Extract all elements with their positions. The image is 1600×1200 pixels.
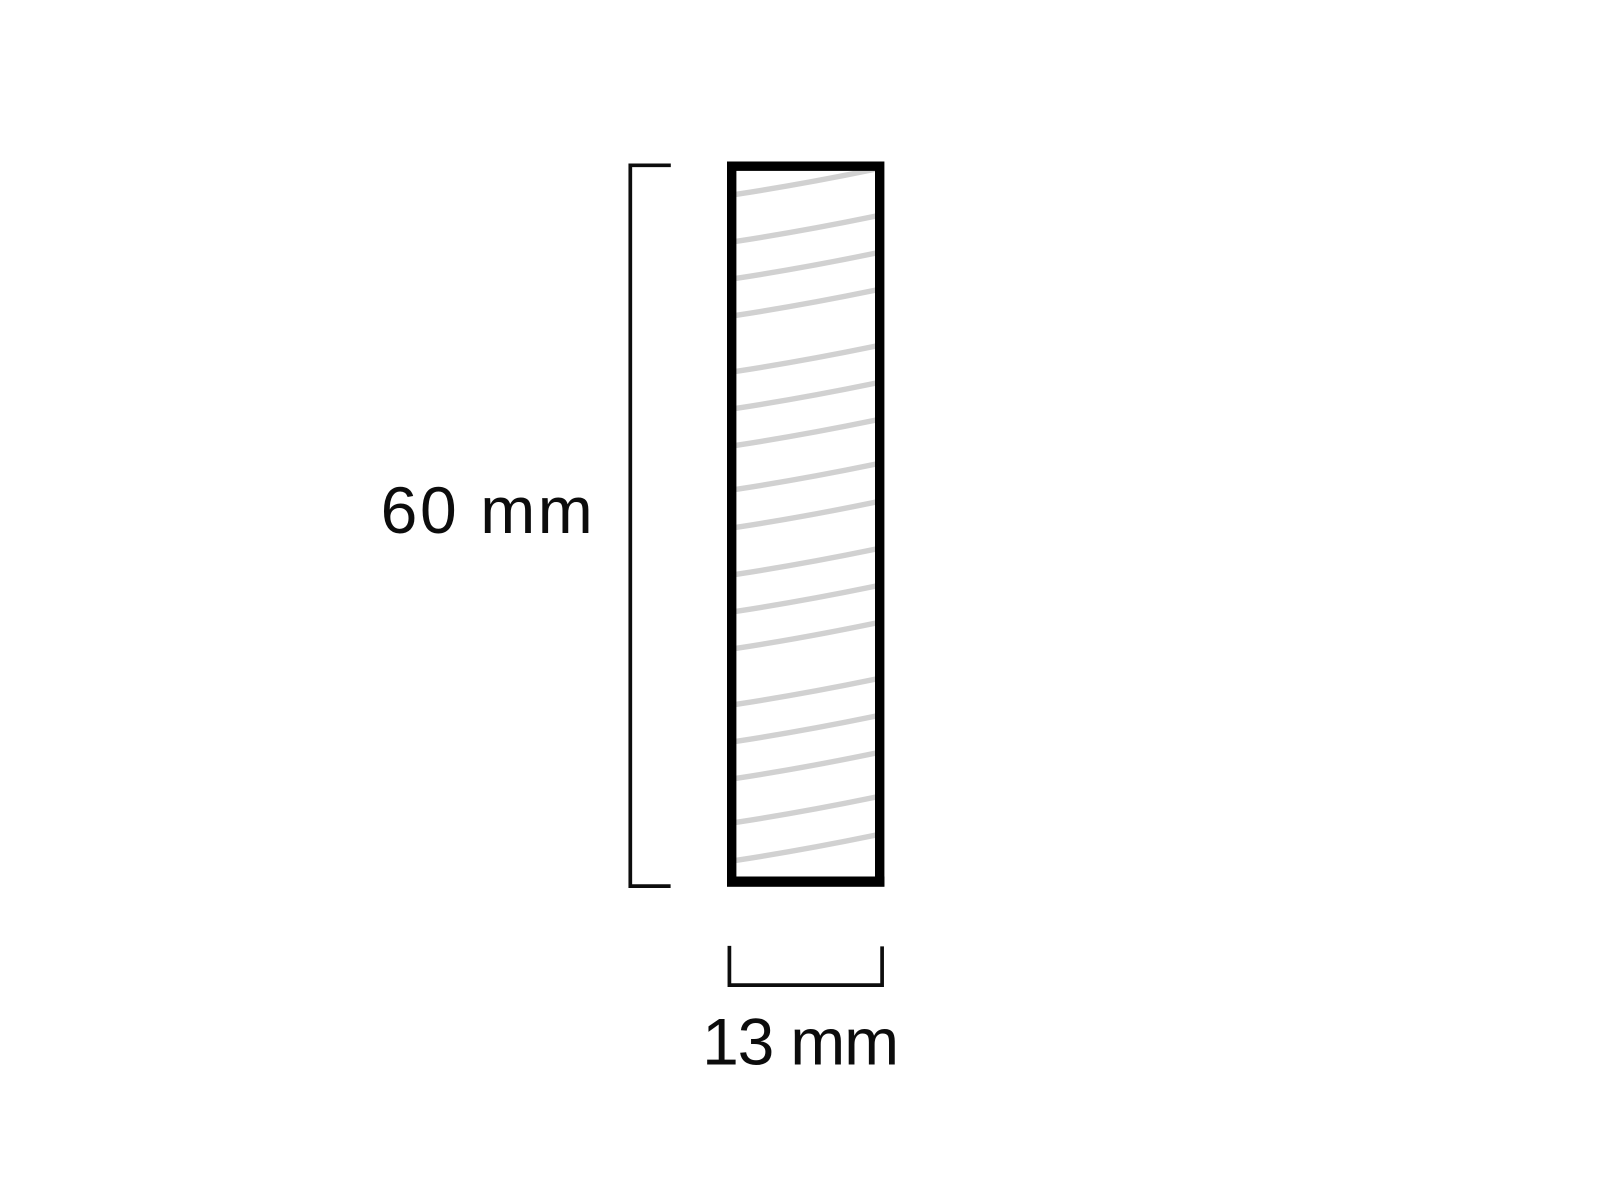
svg-text:13 mm: 13 mm — [702, 1005, 898, 1079]
svg-text:60 mm: 60 mm — [381, 473, 596, 547]
